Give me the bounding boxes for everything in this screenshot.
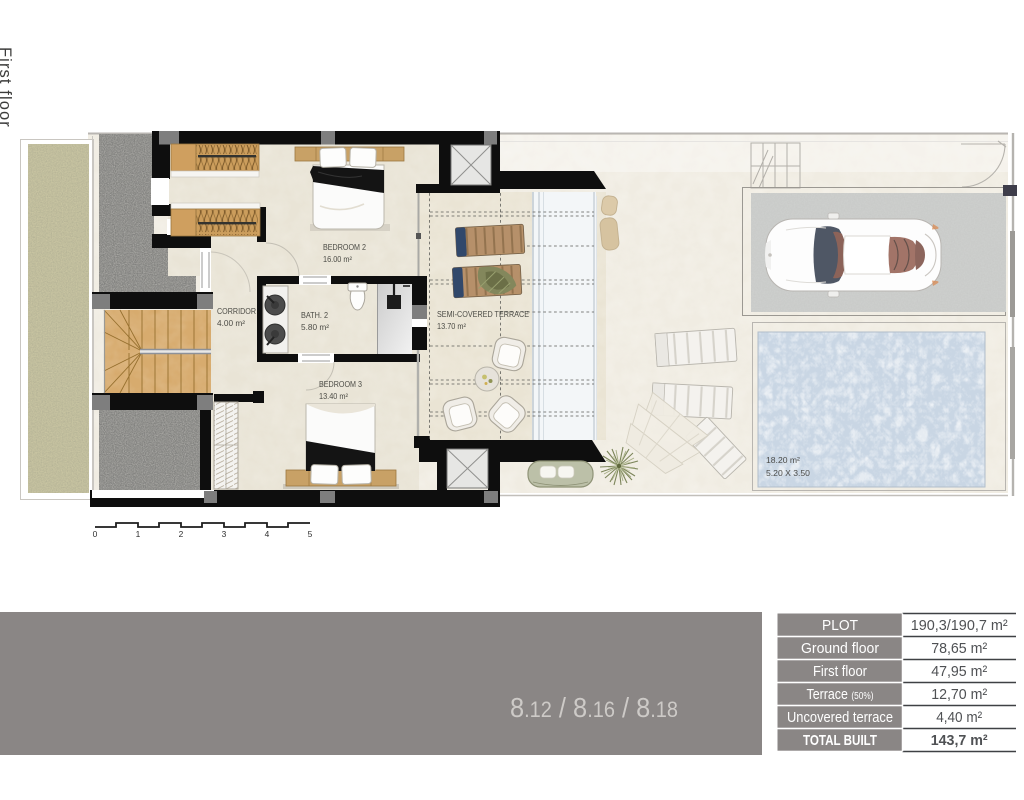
svg-text:8.12 / 8.16 / 8.18: 8.12 / 8.16 / 8.18 [510, 692, 678, 723]
svg-text:Uncovered terrace: Uncovered terrace [787, 709, 893, 726]
svg-text:SEMI-COVERED TERRACE: SEMI-COVERED TERRACE [437, 310, 529, 319]
svg-text:4.00 m²: 4.00 m² [217, 319, 245, 328]
svg-text:1: 1 [136, 529, 141, 539]
svg-text:4,40 m²: 4,40 m² [936, 709, 982, 726]
svg-text:CORRIDOR: CORRIDOR [217, 307, 256, 316]
svg-text:First floor: First floor [0, 47, 14, 128]
svg-text:TOTAL BUILT: TOTAL BUILT [803, 732, 877, 749]
svg-text:BATH. 2: BATH. 2 [301, 311, 328, 320]
svg-text:190,3/190,7 m²: 190,3/190,7 m² [911, 617, 1008, 634]
svg-text:5.80 m²: 5.80 m² [301, 323, 329, 332]
svg-text:13.40 m²: 13.40 m² [319, 392, 348, 401]
svg-text:Ground floor: Ground floor [801, 640, 879, 657]
svg-text:0: 0 [93, 529, 98, 539]
svg-text:2: 2 [179, 529, 184, 539]
svg-text:BEDROOM 2: BEDROOM 2 [323, 243, 366, 252]
svg-text:5.20 X 3.50: 5.20 X 3.50 [766, 468, 810, 478]
svg-text:47,95 m²: 47,95 m² [931, 663, 987, 680]
svg-text:3: 3 [222, 529, 227, 539]
svg-text:PLOT: PLOT [822, 617, 858, 634]
svg-text:4: 4 [265, 529, 270, 539]
svg-text:BEDROOM 3: BEDROOM 3 [319, 380, 362, 389]
svg-text:143,7 m²: 143,7 m² [931, 732, 988, 749]
svg-text:5: 5 [308, 529, 313, 539]
svg-text:13.70 m²: 13.70 m² [437, 322, 466, 331]
svg-text:78,65 m²: 78,65 m² [931, 640, 987, 657]
svg-text:First floor: First floor [813, 663, 867, 680]
svg-text:16.00 m²: 16.00 m² [323, 255, 352, 264]
svg-text:12,70 m²: 12,70 m² [931, 686, 987, 703]
svg-text:18.20 m²: 18.20 m² [766, 455, 800, 465]
